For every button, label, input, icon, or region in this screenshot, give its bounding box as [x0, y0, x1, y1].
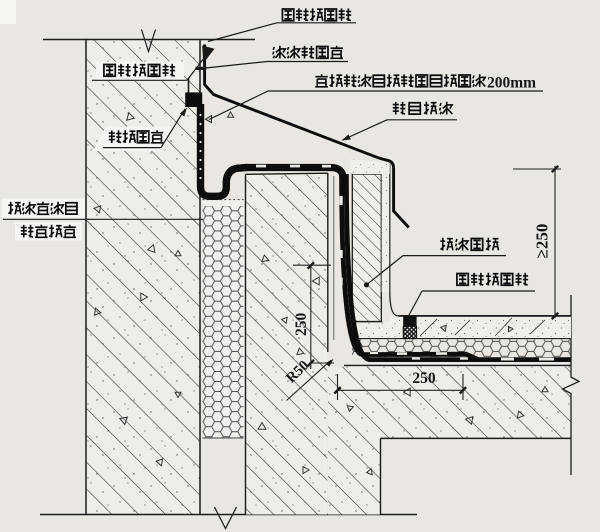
svg-text:200mm: 200mm [487, 75, 536, 92]
svg-text:250: 250 [412, 370, 436, 387]
svg-text:250: 250 [293, 313, 310, 337]
svg-text:≥250: ≥250 [533, 224, 552, 259]
